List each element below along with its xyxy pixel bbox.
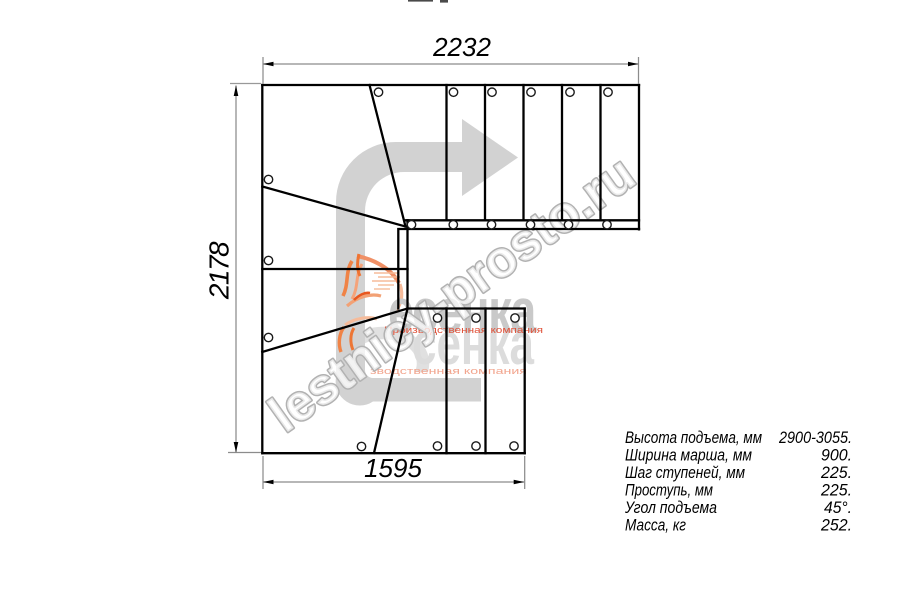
svg-text:2900-3055.: 2900-3055. bbox=[778, 429, 852, 447]
svg-text:Шаг ступеней, мм: Шаг ступеней, мм bbox=[625, 464, 745, 482]
svg-text:2178: 2178 bbox=[204, 241, 235, 300]
svg-text:Ширина марша, мм: Ширина марша, мм bbox=[625, 447, 752, 465]
svg-text:225.: 225. bbox=[820, 464, 852, 482]
svg-text:Угол подъема: Угол подъема bbox=[624, 499, 717, 517]
svg-text:2232: 2232 bbox=[432, 32, 491, 62]
svg-text:45°.: 45°. bbox=[824, 499, 852, 517]
svg-text:Высота подъема, мм: Высота подъема, мм bbox=[625, 429, 762, 447]
svg-text:1595: 1595 bbox=[364, 453, 422, 483]
svg-text:Проступь, мм: Проступь, мм bbox=[625, 482, 713, 500]
svg-text:900.: 900. bbox=[821, 447, 852, 465]
svg-text:Масса, кг: Масса, кг bbox=[625, 517, 686, 535]
svg-text:252.: 252. bbox=[820, 517, 852, 535]
svg-text:225.: 225. bbox=[820, 482, 852, 500]
